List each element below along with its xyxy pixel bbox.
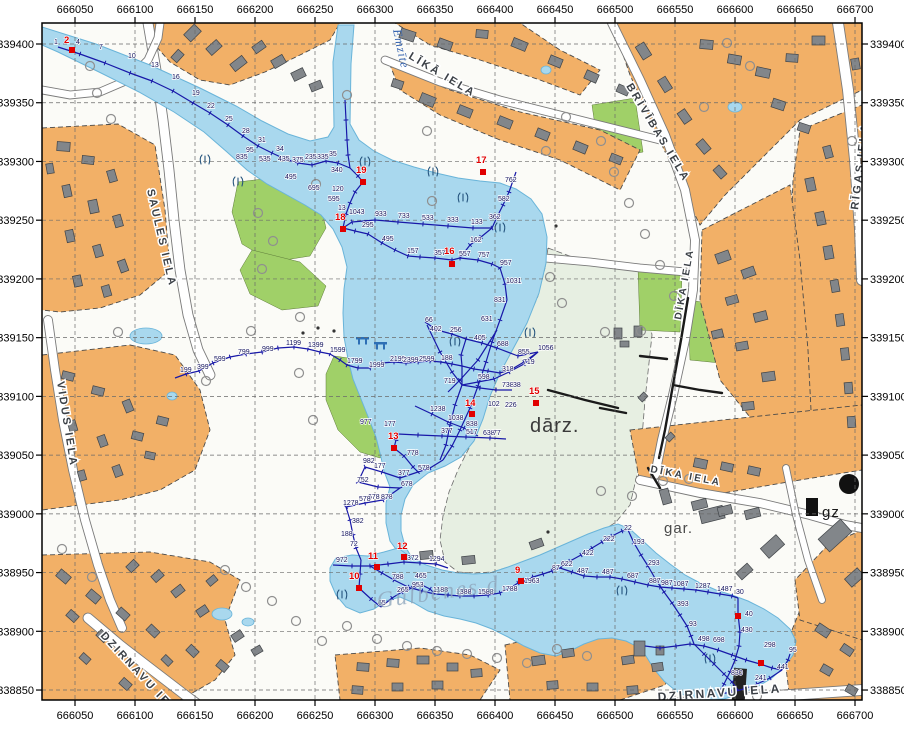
area-label: dārz. [530,415,579,437]
control-point-marker[interactable] [449,261,455,267]
traverse-label: 788 [392,574,404,581]
traverse-label: 799 [238,349,250,356]
axis-label-top: 666350 [417,4,454,16]
traverse-label: 733 [398,213,410,220]
axis-label-right: 339150 [870,333,904,345]
axis-label-left: 339100 [0,391,34,403]
traverse-label: 405 [474,335,486,342]
traverse-label: 13 [151,62,159,69]
traverse-label: 188 [341,531,353,538]
map-canvas[interactable]: 1471013161922252831349583553543537523533… [0,0,904,735]
traverse-label: 2399 [403,357,419,364]
traverse-label: 177 [384,421,396,428]
traverse-label: 957 [500,260,512,267]
traverse-label: 622 [561,561,573,568]
traverse-label: 402 [430,326,442,333]
traverse-label: 377 [398,470,410,477]
traverse-label: 535 [259,156,271,163]
dock-leg [365,340,367,345]
traverse-label: 7 [99,44,103,51]
axis-label-top: 666450 [537,4,574,16]
axis-label-left: 338900 [0,626,34,638]
traverse-label: 133 [471,219,483,226]
building [476,29,489,38]
traverse-label: 752 [357,477,369,484]
building [462,555,476,564]
traverse-label: 333 [447,217,459,224]
traverse-label: 1043 [349,209,365,216]
building [82,155,95,164]
traverse-label: 582 [498,196,510,203]
traverse-label: 35 [329,151,337,158]
traverse-label: 430 [741,627,753,634]
dock-leg [376,345,378,350]
traverse-label: 831 [494,297,506,304]
axis-label-right: 339050 [870,450,904,462]
traverse-label: 298 [764,642,776,649]
traverse-label: 835 [236,154,248,161]
building [634,641,645,656]
building [57,142,71,152]
control-point-marker[interactable] [469,411,475,417]
building [471,669,483,678]
control-point-marker[interactable] [340,226,346,232]
control-point-marker[interactable] [69,47,75,53]
axis-label-left: 339050 [0,450,34,462]
axis-label-top: 666700 [837,4,874,16]
building [46,163,55,174]
control-point-marker[interactable] [758,660,764,666]
control-point-label: 10 [349,571,360,582]
traverse-label: 631 [481,316,493,323]
axis-label-left: 339250 [0,215,34,227]
axis-label-left: 339300 [0,156,34,168]
traverse-label: 719 [523,359,535,366]
traverse-label: 19 [192,90,200,97]
building [700,39,714,49]
station-tick [358,366,359,371]
pond [541,66,551,74]
building [823,245,834,259]
traverse-label: 93 [689,621,697,628]
pond [242,618,254,626]
traverse-label: 318 [502,366,514,373]
traverse-label: 757 [478,252,490,259]
control-point-marker[interactable] [518,578,524,584]
control-point-label: 12 [397,541,408,552]
traverse-label: 199 [180,367,192,374]
traverse-label: 362 [489,214,501,221]
building [547,681,559,690]
traverse-label: 599 [214,356,226,363]
dock-leg [358,340,360,345]
black-landmark-circle [839,474,859,494]
traverse-label: 1238 [430,406,446,413]
axis-label-bottom: 666550 [657,710,694,722]
axis-label-bottom: 666300 [357,710,394,722]
traverse-label: 1087 [673,581,689,588]
axis-label-left: 339350 [0,98,34,110]
control-point-marker[interactable] [480,169,486,175]
axis-label-top: 666600 [717,4,754,16]
dock-symbol [374,342,387,345]
pond [167,392,177,400]
building [432,681,443,689]
control-point-marker[interactable] [533,400,539,406]
map-content: 1471013161922252831349583553543537523533… [42,23,872,723]
axis-label-bottom: 666200 [237,710,274,722]
traverse-label: 382 [352,518,364,525]
axis-label-bottom: 666150 [177,710,214,722]
traverse-label: 1399 [308,342,324,349]
traverse-label: 498 [698,636,710,643]
control-point-marker[interactable] [356,585,362,591]
traverse-label: 435 [278,156,290,163]
axis-label-right: 338900 [870,626,904,638]
building [387,659,400,668]
traverse-label: 335 [317,154,329,161]
pond [212,608,232,620]
traverse-label: 66 [425,317,433,324]
building [830,279,840,292]
traverse-label: 441 [777,664,789,671]
traverse-label: 487 [577,568,589,575]
traverse-label: 533 [422,215,434,222]
traverse-label: 1788 [502,586,518,593]
traverse-label: 933 [375,211,387,218]
control-point-label: 14 [465,398,476,409]
traverse-label: 1294 [429,556,445,563]
axis-label-bottom: 666500 [597,710,634,722]
traverse-label: 838 [466,421,478,428]
black-landmark-square [806,498,818,516]
control-point-label: 9 [515,565,520,576]
traverse-label: 177 [374,463,386,470]
traverse-label: 72 [350,541,358,548]
dot-symbol [316,326,319,329]
traverse-label: 972 [336,557,348,564]
traverse-label: 120 [332,186,344,193]
traverse-label: 95 [789,647,797,654]
building [851,58,861,70]
building [447,663,458,671]
dot-symbol [332,329,335,332]
traverse-label: 157 [407,248,419,255]
building [562,648,575,658]
traverse-label: 95 [246,147,254,154]
axis-label-top: 666400 [477,4,514,16]
traverse-label: 340 [331,167,343,174]
traverse-label: 399 [197,364,209,371]
control-point[interactable] [758,660,764,666]
traverse-label: 495 [285,174,297,181]
axis-label-bottom: 666600 [717,710,754,722]
traverse-label: 1487 [717,586,733,593]
traverse-label: 855 [518,349,530,356]
control-point-marker[interactable] [391,445,397,451]
axis-label-right: 338850 [870,685,904,697]
traverse-label: 102 [488,401,500,408]
control-point-marker[interactable] [401,554,407,560]
traverse-label: 1 [54,39,58,46]
traverse-label: 595 [328,196,340,203]
traverse-label: 830 [731,670,743,677]
traverse-label: 698 [713,637,725,644]
axis-label-top: 666250 [297,4,334,16]
dock-leg [383,345,385,350]
axis-label-right: 339200 [870,274,904,286]
control-point-label: 16 [444,246,455,257]
traverse-label: 188 [441,355,453,362]
axis-label-top: 666100 [117,4,154,16]
dot-symbol [301,331,304,334]
traverse-label: 999 [262,346,274,353]
station-tick [388,562,389,567]
axis-label-bottom: 666700 [837,710,874,722]
control-point[interactable] [735,613,741,619]
axis-label-bottom: 666400 [477,710,514,722]
axis-label-top: 666500 [597,4,634,16]
axis-label-top: 666050 [57,4,94,16]
building [357,663,370,672]
control-point-label: 19 [356,165,367,176]
area-label: gar. [664,520,693,537]
axis-label-left: 339150 [0,333,34,345]
dot-symbol [546,530,549,533]
traverse-label: 193 [633,539,645,546]
traverse-label: 393 [677,601,689,608]
station-tick [346,155,351,156]
traverse-label: 13 [338,205,346,212]
building [742,401,755,410]
traverse-label: 2599 [419,356,435,363]
control-point-label: 11 [368,551,379,562]
traverse-label: 695 [308,185,320,192]
axis-label-right: 339100 [870,391,904,403]
traverse-label: 887 [649,578,661,585]
traverse-label: 762 [505,177,517,184]
traverse-label: 87 [552,565,560,572]
area-label: gz [822,504,840,521]
building [735,341,748,351]
traverse-label: 1999 [369,362,385,369]
traverse-label: 22 [207,103,215,110]
axis-label-right: 338950 [870,568,904,580]
axis-label-top: 666200 [237,4,274,16]
building [840,348,849,361]
traverse-label: 375 [292,157,304,164]
traverse-label: 422 [582,550,594,557]
building [727,54,741,65]
building [847,416,856,428]
traverse-label: 688 [497,341,509,348]
traverse-label: 222 [603,536,615,543]
building [835,314,845,327]
axis-label-bottom: 666050 [57,710,94,722]
traverse-label: 678 [401,481,413,488]
building [622,655,635,665]
traverse-label: 465 [415,573,427,580]
traverse-label: 495 [382,236,394,243]
building [531,655,545,666]
traverse-label: 1031 [506,278,522,285]
traverse-label: 778 [407,450,419,457]
axis-label-right: 339350 [870,98,904,110]
traverse-label: 578 [359,496,371,503]
building [620,341,629,347]
control-point-marker[interactable] [374,564,380,570]
axis-label-bottom: 666100 [117,710,154,722]
control-point-label: 18 [335,212,346,223]
control-point-label: 2 [64,35,69,46]
traverse-label: 235 [305,154,317,161]
traverse-label: 719 [444,378,456,385]
traverse-label: 31 [258,137,266,144]
traverse-label: 878 [381,494,393,501]
map-viewport[interactable]: 1471013161922252831349583553543537523533… [0,0,904,735]
axis-label-left: 338850 [0,685,34,697]
traverse-label: 1199 [286,340,301,347]
building [651,662,663,671]
traverse-label: 377 [441,428,453,435]
traverse-label: 34 [276,146,284,153]
traverse-label: 25 [225,116,233,123]
station-tick [480,386,481,391]
traverse-label: 256 [450,327,462,334]
traverse-label: 1278 [343,500,359,507]
axis-label-top: 666150 [177,4,214,16]
station-tick [459,355,464,356]
building [786,54,799,63]
axis-label-bottom: 666450 [537,710,574,722]
control-point-label: 17 [476,155,487,166]
axis-label-right: 339300 [870,156,904,168]
traverse-label: 598 [478,374,490,381]
traverse-label: 295 [362,222,374,229]
axis-label-bottom: 666350 [417,710,454,722]
axis-label-left: 339200 [0,274,34,286]
axis-label-top: 666300 [357,4,394,16]
axis-label-left: 338950 [0,568,34,580]
control-point-marker[interactable] [360,179,366,185]
control-point-label: 13 [388,431,399,442]
axis-label-right: 339400 [870,39,904,51]
traverse-label: 1038 [448,415,464,422]
traverse-label: 1599 [330,347,346,354]
axis-label-right: 339250 [870,215,904,227]
traverse-label: 1963 [524,578,540,585]
axis-label-top: 666650 [777,4,814,16]
traverse-label: 226 [505,402,517,409]
traverse-label: 22 [624,525,632,532]
traverse-label: 38 [513,382,521,389]
axis-label-right: 339000 [870,509,904,521]
traverse-label: 372 [407,555,419,562]
building [761,371,775,382]
control-point-marker[interactable] [735,613,741,619]
building [844,382,853,394]
traverse-label: 578 [418,465,430,472]
axis-label-left: 339400 [0,39,34,51]
axis-label-top: 666550 [657,4,694,16]
traverse-label: 162 [470,237,482,244]
traverse-label: 77 [493,430,501,437]
control-point-label: 15 [529,386,540,397]
traverse-label: 687 [627,573,639,580]
traverse-label: 1056 [538,345,554,352]
traverse-label: 487 [602,569,614,576]
axis-label-bottom: 666250 [297,710,334,722]
traverse-label: 16 [172,74,180,81]
traverse-label: 4 [76,39,80,46]
traverse-label: 241 [755,675,767,682]
traverse-label: 293 [648,560,660,567]
traverse-label: 1287 [695,583,711,590]
axis-label-bottom: 666650 [777,710,814,722]
station-tick [378,485,379,490]
axis-label-left: 339000 [0,509,34,521]
traverse-label: 40 [745,611,753,618]
traverse-label: 987 [661,580,673,587]
traverse-label: 977 [360,419,372,426]
building [417,656,429,664]
traverse-label: 30 [736,589,744,596]
traverse-label: 28 [242,128,250,135]
traverse-label: 10 [128,53,136,60]
traverse-label: 517 [466,429,478,436]
station-tick [676,644,677,649]
traverse-label: 557 [459,251,471,258]
traverse-label: 1799 [347,358,363,365]
